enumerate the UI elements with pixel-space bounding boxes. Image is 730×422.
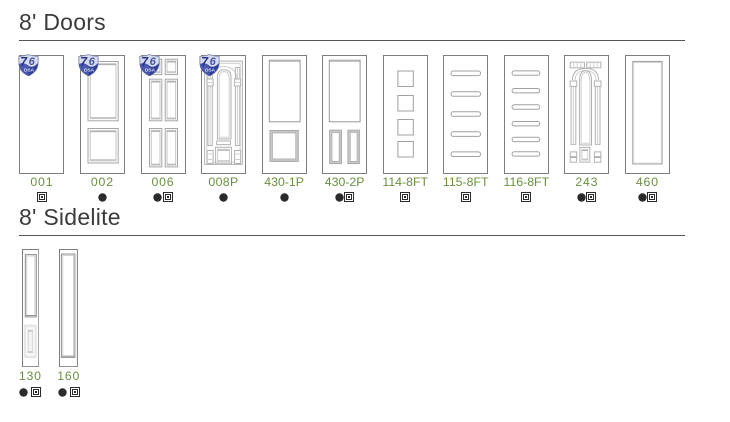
svg-text:6: 6 <box>28 56 35 68</box>
svg-text:7: 7 <box>141 55 149 69</box>
svg-text:6: 6 <box>89 56 96 68</box>
svg-text:7: 7 <box>20 55 28 69</box>
svg-text:DSA: DSA <box>84 67 95 73</box>
svg-text:7: 7 <box>202 55 210 69</box>
svg-text:DSA: DSA <box>205 67 216 73</box>
svg-text:6: 6 <box>149 56 156 68</box>
svg-text:DSA: DSA <box>145 67 156 73</box>
svg-text:6: 6 <box>210 56 217 68</box>
svg-text:7: 7 <box>80 55 88 69</box>
svg-text:DSA: DSA <box>24 67 35 73</box>
